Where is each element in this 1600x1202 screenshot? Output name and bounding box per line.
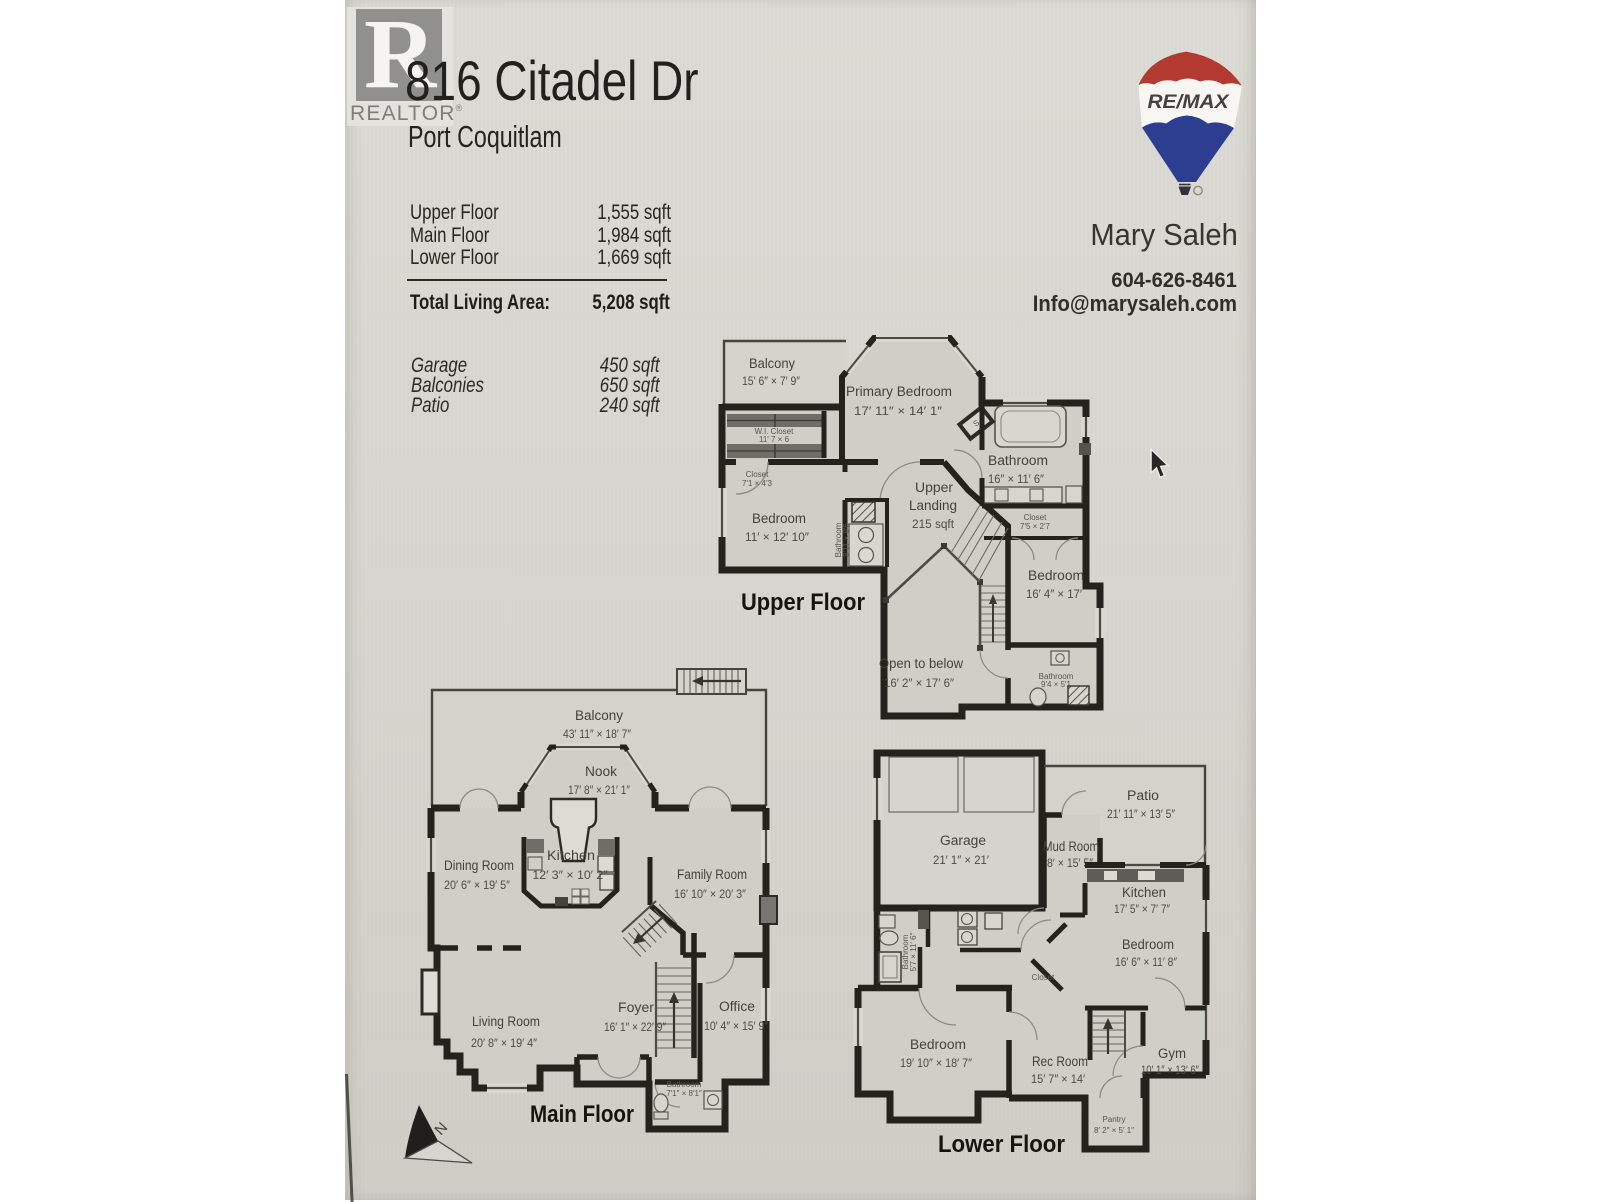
svg-text:19′ 10″ × 18′ 7″: 19′ 10″ × 18′ 7″: [900, 1056, 973, 1070]
svg-text:Main Floor: Main Floor: [530, 1101, 634, 1128]
svg-text:Bedroom: Bedroom: [1122, 937, 1174, 952]
svg-text:Nook: Nook: [585, 764, 617, 779]
svg-text:Primary Bedroom: Primary Bedroom: [846, 384, 952, 399]
svg-text:Patio: Patio: [1127, 788, 1159, 803]
svg-text:Closet: Closet: [1032, 973, 1055, 982]
svg-text:Rec Room: Rec Room: [1032, 1054, 1088, 1069]
svg-text:16′ 1″ × 22′ 9″: 16′ 1″ × 22′ 9″: [604, 1020, 667, 1034]
svg-text:Pantry: Pantry: [1102, 1115, 1125, 1124]
svg-text:Bathroom: Bathroom: [667, 1080, 702, 1089]
svg-text:Living Room: Living Room: [472, 1014, 540, 1029]
svg-text:16″ × 11′ 6″: 16″ × 11′ 6″: [988, 472, 1045, 486]
svg-text:7′5 × 2′7: 7′5 × 2′7: [1020, 522, 1050, 531]
svg-text:8′11 × 9′6: 8′11 × 9′6: [842, 523, 851, 557]
svg-text:11′ × 12′ 10″: 11′ × 12′ 10″: [745, 530, 810, 544]
svg-text:Bedroom: Bedroom: [1028, 568, 1084, 583]
svg-text:Balcony: Balcony: [575, 708, 623, 723]
svg-text:12′ 3″ × 10′ 2″: 12′ 3″ × 10′ 2″: [532, 868, 608, 882]
svg-text:Bathroom: Bathroom: [988, 453, 1048, 468]
svg-text:16′ 2″ × 17′ 6″: 16′ 2″ × 17′ 6″: [884, 676, 955, 690]
svg-text:10′ 1″ × 13′ 6″: 10′ 1″ × 13′ 6″: [1141, 1063, 1199, 1077]
svg-text:Kitchen: Kitchen: [547, 848, 595, 863]
svg-text:10′ 4″ × 15′ 9″: 10′ 4″ × 15′ 9″: [704, 1019, 769, 1033]
svg-text:Landing: Landing: [909, 498, 957, 513]
svg-text:17′ 5″ × 7′ 7″: 17′ 5″ × 7′ 7″: [1114, 902, 1171, 916]
svg-text:Mud Room: Mud Room: [1043, 839, 1099, 854]
svg-text:Foyer: Foyer: [618, 1000, 655, 1015]
svg-text:7′1 × 4′3: 7′1 × 4′3: [742, 479, 772, 488]
svg-text:21′ 11″ × 13′ 5″: 21′ 11″ × 13′ 5″: [1107, 807, 1176, 821]
svg-text:20′ 8″ × 19′ 4″: 20′ 8″ × 19′ 4″: [471, 1036, 538, 1050]
svg-text:11′ 7 × 6: 11′ 7 × 6: [759, 435, 790, 444]
svg-text:Upper: Upper: [915, 480, 954, 495]
svg-text:RE/MAX: RE/MAX: [1148, 92, 1230, 113]
svg-text:16′ 4″ × 17′: 16′ 4″ × 17′: [1026, 587, 1083, 601]
svg-text:Family Room: Family Room: [677, 867, 747, 882]
svg-text:7′1″ × 8′1″: 7′1″ × 8′1″: [666, 1089, 702, 1098]
svg-text:Bedroom: Bedroom: [910, 1037, 966, 1052]
svg-text:Dining Room: Dining Room: [444, 858, 514, 873]
svg-text:16′ 10″ × 20′ 3″: 16′ 10″ × 20′ 3″: [674, 887, 747, 901]
svg-text:17′ 8″ × 21′ 1″: 17′ 8″ × 21′ 1″: [568, 783, 631, 797]
svg-text:Garage: Garage: [940, 833, 986, 848]
svg-text:17′ 11″ × 14′ 1″: 17′ 11″ × 14′ 1″: [854, 404, 943, 418]
svg-text:15′ 6″ × 7′ 9″: 15′ 6″ × 7′ 9″: [742, 374, 801, 388]
svg-text:9′4 × 5′1: 9′4 × 5′1: [1041, 680, 1071, 689]
svg-text:15′ 7″ × 14′: 15′ 7″ × 14′: [1031, 1072, 1086, 1086]
svg-text:16′ 6″ × 11′ 8″: 16′ 6″ × 11′ 8″: [1115, 955, 1178, 969]
svg-text:21′ 1″ × 21′: 21′ 1″ × 21′: [933, 853, 990, 867]
svg-text:Gym: Gym: [1158, 1046, 1186, 1061]
svg-text:Balcony: Balcony: [749, 356, 795, 371]
svg-text:Closet: Closet: [746, 470, 769, 479]
svg-text:Bedroom: Bedroom: [752, 511, 806, 526]
svg-text:Upper Floor: Upper Floor: [741, 589, 865, 616]
svg-text:5′7 × 11′ 6″: 5′7 × 11′ 6″: [909, 932, 918, 971]
svg-text:Lower Floor: Lower Floor: [938, 1131, 1065, 1158]
svg-text:Open to below: Open to below: [879, 656, 963, 671]
svg-text:43′ 11″ × 18′ 7″: 43′ 11″ × 18′ 7″: [563, 727, 632, 741]
svg-text:20′ 6″ × 19′ 5″: 20′ 6″ × 19′ 5″: [444, 878, 511, 892]
svg-text:Closet: Closet: [1024, 513, 1047, 522]
svg-text:Office: Office: [719, 999, 755, 1014]
svg-text:Kitchen: Kitchen: [1122, 885, 1166, 900]
svg-text:8′ 2″ × 5′ 1″: 8′ 2″ × 5′ 1″: [1094, 1126, 1134, 1135]
svg-text:215 sqft: 215 sqft: [912, 517, 955, 531]
